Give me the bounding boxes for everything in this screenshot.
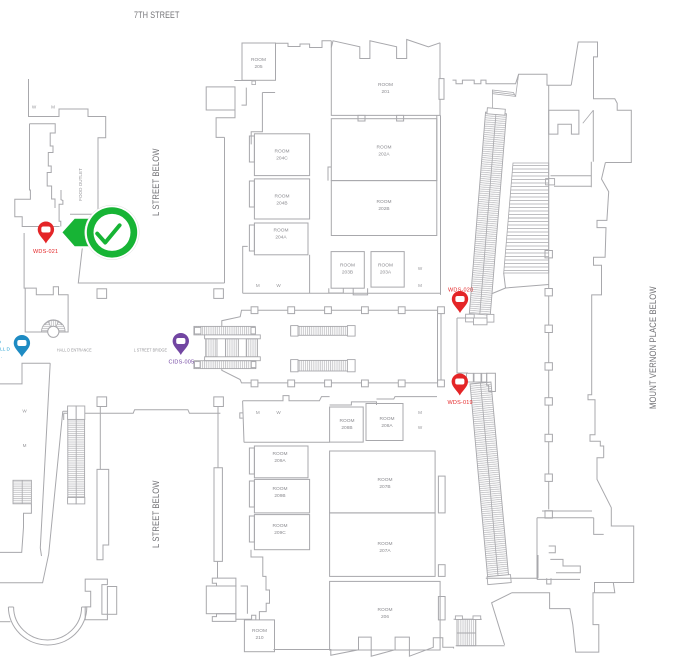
svg-text:ROOM209A: ROOM209A [273,451,288,464]
svg-text:ROOM204C: ROOM204C [275,149,290,162]
svg-text:.: . [1,355,2,360]
svg-text:M: M [418,283,422,288]
svg-text:ROOM203A: ROOM203A [378,263,393,276]
svg-text:ROOM202A: ROOM202A [377,145,392,158]
svg-text:M: M [418,410,422,415]
svg-text:ROOM203B: ROOM203B [340,263,355,276]
svg-text:ROOM204B: ROOM204B [275,194,290,207]
svg-text:ROOM208B: ROOM208B [340,418,355,431]
svg-text:M: M [256,410,260,415]
svg-text:M: M [256,283,260,288]
svg-text:ROOM210: ROOM210 [252,628,267,641]
svg-text:7TH STREET: 7TH STREET [134,9,180,20]
svg-text:W: W [418,266,423,271]
svg-text:D: D [0,340,2,346]
svg-text:ROOM201: ROOM201 [378,82,393,95]
svg-text:ROOM207B: ROOM207B [378,477,393,490]
svg-text:ROOM205: ROOM205 [251,57,266,70]
svg-text:W: W [22,409,27,414]
svg-text:M: M [51,105,55,110]
svg-text:M: M [23,443,27,448]
svg-text:WDS-021: WDS-021 [33,249,58,255]
svg-text:ROOM208A: ROOM208A [380,416,395,429]
svg-text:ROOM209C: ROOM209C [273,523,288,536]
svg-text:CIDS-005: CIDS-005 [169,360,195,366]
svg-text:ROOM207A: ROOM207A [378,541,393,554]
svg-text:W: W [32,105,37,110]
svg-text:FOOD OUTLET: FOOD OUTLET [78,168,83,201]
svg-text:L STREET BELOW: L STREET BELOW [150,480,161,548]
svg-text:ROOM209B: ROOM209B [273,486,288,499]
svg-text:ROOM202B: ROOM202B [377,199,392,212]
svg-text:LL D: LL D [0,347,10,353]
svg-text:W: W [418,425,423,430]
svg-text:L STREET BRIDGE: L STREET BRIDGE [134,347,167,352]
svg-text:WDS-019: WDS-019 [448,400,473,406]
svg-text:W: W [276,283,281,288]
svg-text:ROOM204A: ROOM204A [274,228,289,241]
svg-text:MOUNT VERNON PLACE BELOW: MOUNT VERNON PLACE BELOW [647,286,658,409]
svg-text:W: W [276,410,281,415]
svg-text:ROOM206: ROOM206 [378,607,393,620]
svg-text:L STREET BELOW: L STREET BELOW [150,148,161,216]
svg-text:HALL D ENTRANCE: HALL D ENTRANCE [57,347,92,352]
